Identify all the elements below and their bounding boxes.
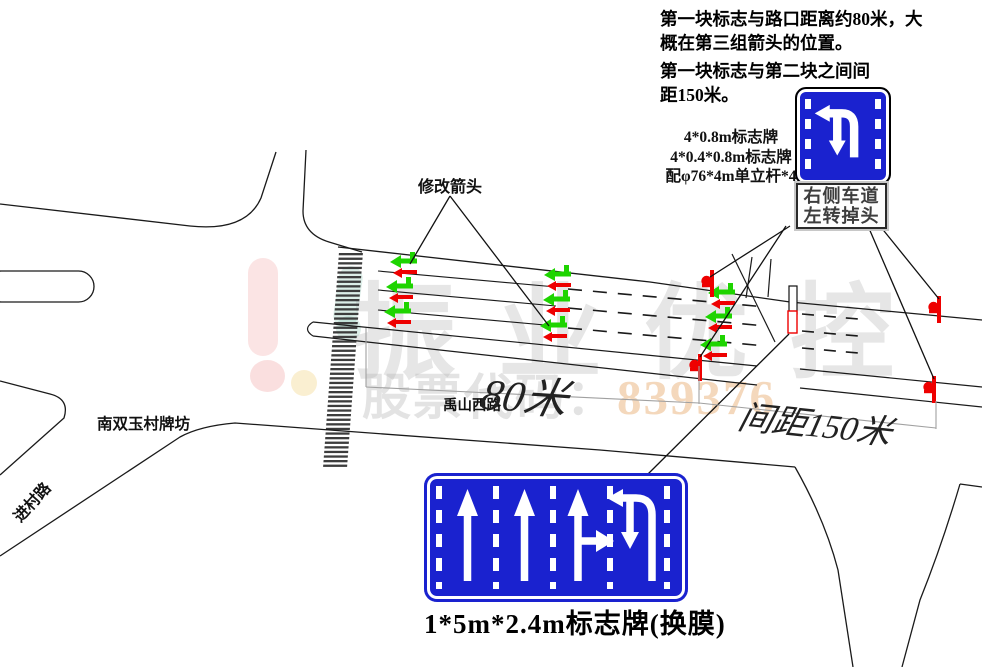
arrow-pair <box>544 265 571 291</box>
large-sign-caption: 1*5m*2.4m标志牌(换膜) <box>424 602 688 641</box>
south-edge-west-corner <box>0 381 65 475</box>
sign-post-marker-2 <box>689 354 702 381</box>
south-sideroad-west-edge <box>795 467 853 667</box>
sign-dash-column <box>875 99 881 173</box>
sign-location-marker <box>788 286 797 333</box>
spec-line-3: 配φ76*4m单立杆*4 <box>645 167 817 187</box>
median-island-west <box>0 271 94 302</box>
note-line-2: 概在第三组箭头的位置。 <box>660 32 923 56</box>
north-edge-west <box>0 152 276 227</box>
spec-line-1: 4*0.8m标志牌 <box>645 128 817 148</box>
spec-line-2: 4*0.4*0.8m标志牌 <box>645 148 817 168</box>
lane-lines-dashed-mid <box>568 289 766 346</box>
centre-median <box>308 254 982 407</box>
sign-caption-box: 右侧车道 左转掉头 <box>796 183 887 229</box>
uturn-left-sign-icon <box>795 87 891 185</box>
note-line-1: 第一块标志与路口距离约80米，大 <box>660 8 923 32</box>
arrow-pair <box>386 277 413 303</box>
arrow-pair <box>384 302 411 328</box>
caption-line-1: 右侧车道 <box>798 186 885 206</box>
lane-direction-sign-icon <box>424 473 688 602</box>
modify-arrow-label: 修改箭头 <box>418 173 482 197</box>
dimension-80m-label: 80米 <box>476 360 575 427</box>
south-edge-east-stub <box>960 484 982 487</box>
sign-post-marker-1 <box>701 270 714 297</box>
median-opening-taper-2 <box>768 259 771 297</box>
north-edge-main <box>338 247 982 320</box>
lane-lines-dashed-east <box>802 314 858 353</box>
zebra-crossing <box>323 252 363 468</box>
south-sideroad-east-edge <box>902 484 960 667</box>
lane-arrows-icon <box>424 473 688 602</box>
sign-post-marker-4 <box>923 376 936 403</box>
arrow-pair <box>543 290 570 316</box>
arrow-pairs <box>384 252 735 361</box>
sign-post-marker-3 <box>928 296 941 323</box>
left-uturn-arrow-icon <box>811 101 871 165</box>
note-line-3: 第一块标志与第二块之间间 <box>660 60 923 84</box>
arrow-pair <box>700 335 727 361</box>
caption-line-2: 左转掉头 <box>798 206 885 226</box>
traffic-plan-canvas: 振业优控 股票代码：839376 <box>0 0 982 667</box>
top-sideroad-right-edge <box>303 150 362 252</box>
village-gate-label: 南双玉村牌坊 <box>97 412 190 434</box>
sign-spec-block: 4*0.8m标志牌 4*0.4*0.8m标志牌 配φ76*4m单立杆*4 <box>645 128 817 187</box>
